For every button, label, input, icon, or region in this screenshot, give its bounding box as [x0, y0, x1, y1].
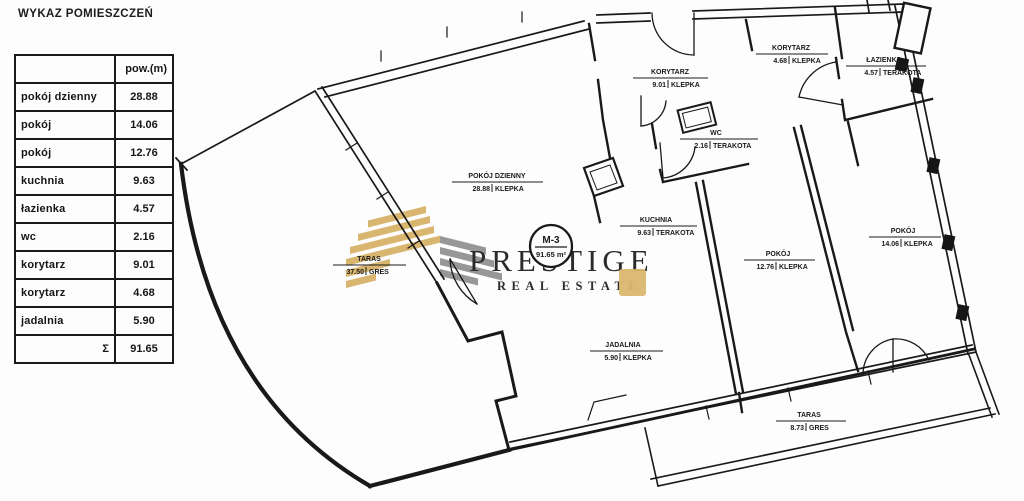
room-label: POKÓJ 14.06 KLEPKA [869, 226, 941, 248]
room-material: KLEPKA [792, 58, 821, 65]
room-label: JADALNIA 5.90 KLEPKA [590, 342, 663, 362]
bottom-wall-shadow [509, 349, 974, 450]
room-labels: POKÓJ DZIENNY 28.88 KLEPKA KORYTARZ 9.01… [333, 45, 941, 432]
room-material: KLEPKA [779, 264, 808, 271]
door-arcs [450, 13, 929, 375]
room-area: 4.57 [864, 70, 878, 77]
room-name: JADALNIA [605, 342, 640, 349]
room-name: KORYTARZ [772, 45, 811, 52]
room-area: 28.88 [472, 186, 490, 193]
room-material: TERAKOTA [656, 230, 694, 237]
wall-pillars [895, 57, 970, 321]
room-material: TERAKOTA [883, 70, 921, 77]
exterior-walls [176, 0, 976, 449]
room-material: KLEPKA [904, 241, 933, 248]
room-area: 14.06 [881, 241, 899, 248]
room-label: POKÓJ DZIENNY 28.88 KLEPKA [452, 171, 543, 193]
room-area: 37.50 [346, 269, 364, 276]
room-material: KLEPKA [495, 186, 524, 193]
room-area: 9.01 [652, 82, 666, 89]
room-material: TERAKOTA [713, 143, 751, 150]
room-area: 9.63 [637, 230, 651, 237]
shaft-outline [584, 158, 623, 196]
room-area: 4.68 [773, 58, 787, 65]
room-label: KORYTARZ 9.01 KLEPKA [633, 69, 708, 89]
room-area: 8.73 [790, 425, 804, 432]
room-name: POKÓJ DZIENNY [468, 171, 526, 180]
watermark-gold-square [619, 269, 646, 296]
room-material: KLEPKA [671, 82, 700, 89]
unit-code: M-3 [542, 235, 560, 246]
room-name: KORYTARZ [651, 69, 690, 76]
brand-watermark: PRESTIGE REAL ESTATE [346, 203, 654, 296]
corner-column [895, 3, 931, 54]
unit-badge: M-3 91.65 m² [530, 225, 572, 267]
room-material: GRES [809, 425, 829, 432]
unit-badge-circle [530, 225, 572, 267]
room-name: KUCHNIA [640, 217, 672, 224]
room-area: 12.76 [756, 264, 774, 271]
room-name: POKÓJ [766, 249, 791, 258]
floorplan-drawing: PRESTIGE REAL ESTATE [0, 0, 1024, 501]
room-name: WC [710, 130, 722, 137]
floorplan-document: WYKAZ POMIESZCZEŃ pow.(m) pokój dzienny … [0, 0, 1024, 501]
bay-zigzag-wall [437, 283, 516, 450]
pillar [910, 77, 924, 94]
room-label: WC 2.16 TERAKOTA [680, 130, 758, 150]
room-name: TARAS [357, 256, 381, 263]
room-material: GRES [369, 269, 389, 276]
room-label: POKÓJ 12.76 KLEPKA [744, 249, 815, 271]
room-name: ŁAZIENKA [866, 57, 901, 64]
room-area: 5.90 [604, 355, 618, 362]
room-area: 2.16 [694, 143, 708, 150]
room-name: POKÓJ [891, 226, 916, 235]
unit-area: 91.65 m² [536, 250, 567, 259]
room-label: KORYTARZ 4.68 KLEPKA [756, 45, 828, 65]
room-label: TARAS 8.73 GRES [776, 412, 846, 432]
room-label: KUCHNIA 9.63 TERAKOTA [620, 217, 697, 237]
room-name: TARAS [797, 412, 821, 419]
room-material: KLEPKA [623, 355, 652, 362]
terrace-right-outline [645, 352, 999, 486]
